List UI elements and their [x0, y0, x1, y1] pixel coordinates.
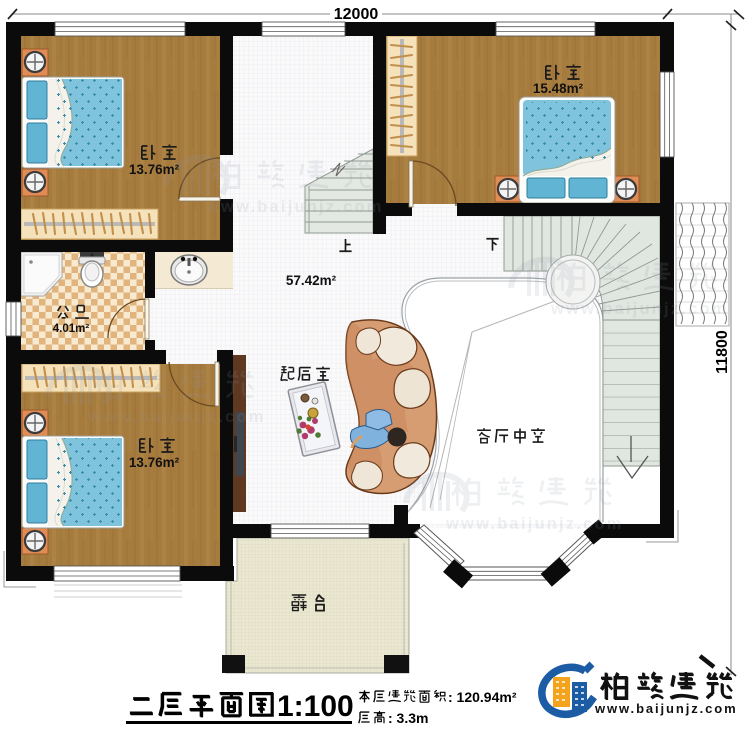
- svg-text:11800: 11800: [714, 330, 731, 374]
- svg-text:www.baijunjz.com: www.baijunjz.com: [594, 701, 738, 716]
- svg-text:13.76m²: 13.76m²: [129, 162, 180, 177]
- svg-text:57.42m²: 57.42m²: [286, 273, 337, 288]
- svg-text:4.01m²: 4.01m²: [53, 323, 90, 335]
- svg-text:: 3.3m: : 3.3m: [388, 710, 428, 726]
- svg-text:1:100: 1:100: [277, 690, 354, 723]
- svg-text:: 120.94m²: : 120.94m²: [448, 689, 517, 705]
- svg-text:13.76m²: 13.76m²: [129, 455, 180, 470]
- svg-text:12000: 12000: [334, 6, 379, 23]
- svg-text:15.48m²: 15.48m²: [533, 81, 584, 96]
